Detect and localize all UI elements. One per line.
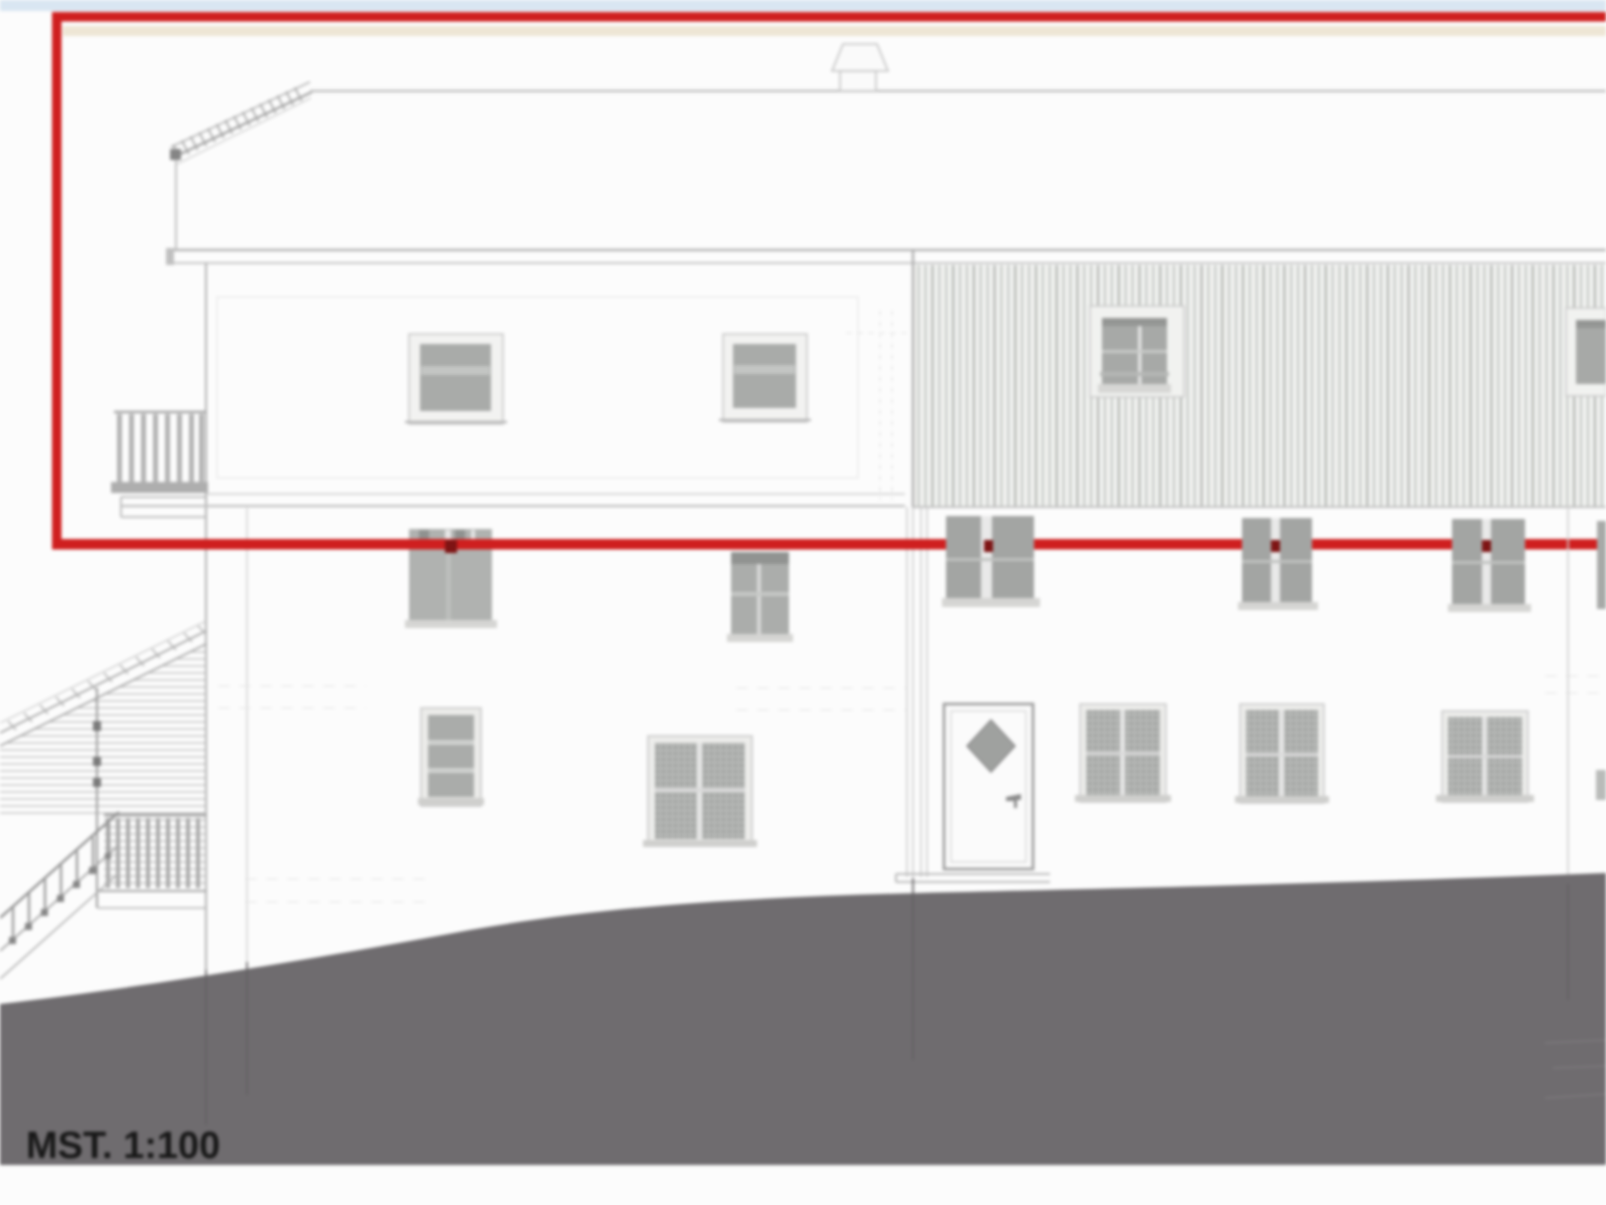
- svg-text:MST. 1:100: MST. 1:100: [26, 1125, 220, 1167]
